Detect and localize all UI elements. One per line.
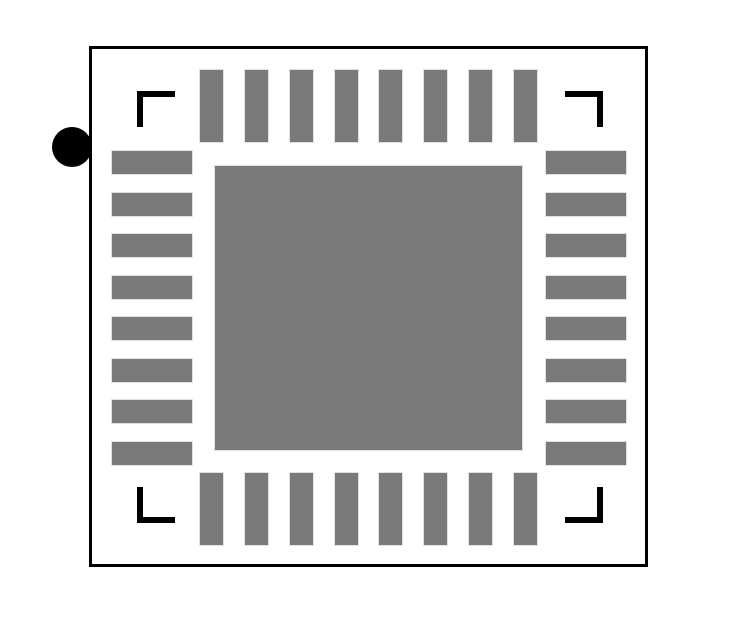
- exposed-thermal-pad: [215, 166, 522, 450]
- qfn-footprint-diagram: [0, 0, 730, 620]
- pin-pad-right-6: [546, 359, 626, 382]
- pin1-indicator-dot: [52, 127, 92, 167]
- pin-pad-right-1: [546, 151, 626, 174]
- pin-pad-right-7: [546, 400, 626, 423]
- pin-pad-right-4: [546, 276, 626, 299]
- pin-pad-right-2: [546, 193, 626, 216]
- pin-pad-right-5: [546, 317, 626, 340]
- pin-pad-right-3: [546, 234, 626, 257]
- package-outline: [89, 46, 648, 567]
- pin-pad-right-8: [546, 442, 626, 465]
